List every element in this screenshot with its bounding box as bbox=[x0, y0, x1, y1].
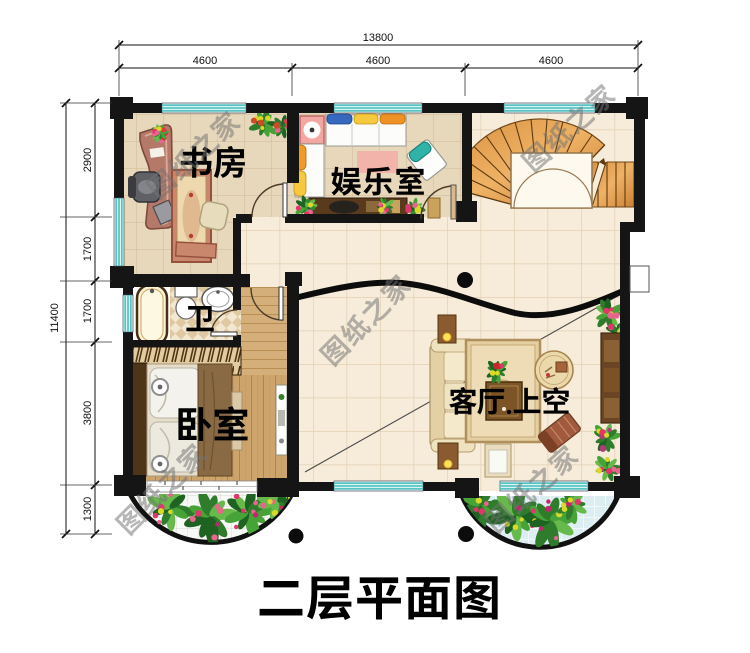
svg-text:13800: 13800 bbox=[363, 32, 394, 44]
svg-text:11400: 11400 bbox=[49, 303, 61, 333]
svg-text:3800: 3800 bbox=[82, 401, 94, 425]
svg-text:4600: 4600 bbox=[539, 55, 563, 67]
svg-text:1700: 1700 bbox=[82, 237, 94, 261]
svg-text:4600: 4600 bbox=[193, 55, 217, 67]
svg-text:1700: 1700 bbox=[82, 299, 94, 323]
svg-text:4600: 4600 bbox=[366, 55, 390, 67]
svg-text:2900: 2900 bbox=[82, 148, 94, 172]
svg-text:1300: 1300 bbox=[82, 497, 94, 521]
